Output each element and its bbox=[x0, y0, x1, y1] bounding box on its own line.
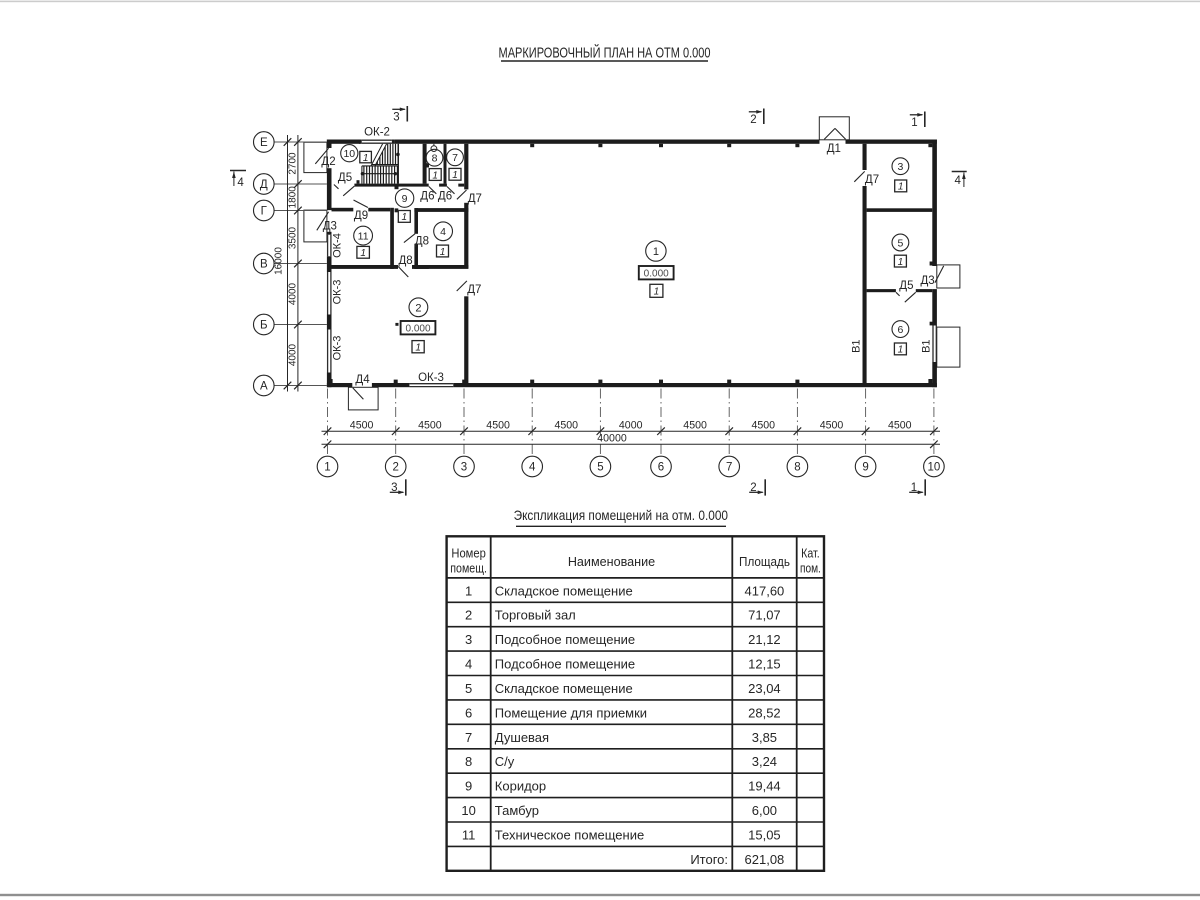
svg-text:7: 7 bbox=[452, 152, 458, 164]
svg-text:помещ.: помещ. bbox=[450, 560, 487, 575]
svg-text:4500: 4500 bbox=[683, 420, 707, 432]
svg-text:9: 9 bbox=[402, 193, 408, 205]
svg-text:1: 1 bbox=[324, 462, 330, 474]
svg-text:Д1: Д1 bbox=[827, 143, 841, 155]
svg-text:ОК-2: ОК-2 bbox=[364, 127, 390, 139]
svg-text:Подсобное помещение: Подсобное помещение bbox=[495, 657, 635, 672]
svg-text:1: 1 bbox=[363, 153, 369, 164]
svg-text:ОК-4: ОК-4 bbox=[332, 233, 344, 258]
svg-text:21,12: 21,12 bbox=[748, 632, 781, 647]
svg-text:1: 1 bbox=[898, 257, 904, 268]
svg-text:Д7: Д7 bbox=[865, 174, 879, 186]
svg-text:ОК-3: ОК-3 bbox=[332, 336, 344, 361]
svg-text:9: 9 bbox=[465, 779, 472, 794]
svg-text:0.000: 0.000 bbox=[644, 268, 669, 279]
svg-text:2: 2 bbox=[465, 608, 472, 623]
svg-text:1: 1 bbox=[654, 287, 660, 298]
svg-text:Номер: Номер bbox=[451, 546, 486, 561]
svg-text:Складское помещение: Складское помещение bbox=[495, 681, 633, 696]
svg-text:10: 10 bbox=[928, 462, 941, 474]
svg-text:5: 5 bbox=[897, 237, 903, 249]
svg-text:8: 8 bbox=[465, 754, 472, 769]
svg-text:6,00: 6,00 bbox=[752, 803, 777, 818]
svg-text:Итого:: Итого: bbox=[690, 852, 728, 867]
svg-text:Техническое помещение: Техническое помещение bbox=[495, 827, 644, 842]
svg-text:16000: 16000 bbox=[274, 247, 285, 275]
svg-text:7: 7 bbox=[726, 462, 732, 474]
svg-text:4: 4 bbox=[465, 657, 472, 672]
svg-text:Душевая: Душевая bbox=[495, 730, 549, 745]
svg-text:Д6: Д6 bbox=[420, 191, 434, 203]
svg-text:4500: 4500 bbox=[555, 420, 579, 432]
svg-text:В1: В1 bbox=[850, 339, 862, 352]
svg-text:ОК-3: ОК-3 bbox=[332, 280, 344, 305]
svg-text:1: 1 bbox=[440, 247, 446, 258]
svg-text:Д3: Д3 bbox=[323, 221, 337, 233]
svg-text:15,05: 15,05 bbox=[748, 827, 781, 842]
svg-text:Д2: Д2 bbox=[321, 156, 335, 168]
svg-text:Д5: Д5 bbox=[899, 280, 913, 292]
svg-text:621,08: 621,08 bbox=[745, 852, 785, 867]
svg-text:Д8: Д8 bbox=[415, 236, 429, 248]
svg-text:3,85: 3,85 bbox=[752, 730, 777, 745]
svg-text:0.000: 0.000 bbox=[405, 323, 430, 334]
svg-text:Д4: Д4 bbox=[355, 374, 370, 386]
svg-text:4500: 4500 bbox=[752, 420, 776, 432]
svg-text:1: 1 bbox=[452, 170, 458, 181]
svg-text:Кат.: Кат. bbox=[801, 545, 820, 560]
svg-text:2: 2 bbox=[392, 462, 398, 474]
svg-text:Б: Б bbox=[260, 320, 268, 332]
svg-text:3: 3 bbox=[897, 161, 903, 173]
svg-text:4500: 4500 bbox=[486, 420, 510, 432]
svg-text:7: 7 bbox=[465, 730, 472, 745]
svg-text:3,24: 3,24 bbox=[752, 754, 777, 769]
svg-text:4: 4 bbox=[440, 226, 446, 238]
svg-text:1: 1 bbox=[465, 583, 472, 598]
svg-text:1: 1 bbox=[911, 117, 917, 129]
svg-text:9: 9 bbox=[862, 462, 868, 474]
svg-text:10: 10 bbox=[461, 803, 475, 818]
svg-text:4000: 4000 bbox=[619, 420, 643, 432]
svg-text:Д7: Д7 bbox=[468, 193, 482, 205]
svg-text:11: 11 bbox=[358, 230, 369, 242]
svg-text:4: 4 bbox=[954, 175, 961, 187]
svg-text:4000: 4000 bbox=[287, 343, 298, 366]
svg-text:МАРКИРОВОЧНЫЙ ПЛАН НА ОТМ 0.00: МАРКИРОВОЧНЫЙ ПЛАН НА ОТМ 0.000 bbox=[499, 44, 711, 61]
svg-text:8: 8 bbox=[794, 462, 800, 474]
svg-text:71,07: 71,07 bbox=[748, 608, 781, 623]
svg-text:1: 1 bbox=[402, 212, 408, 223]
svg-text:4: 4 bbox=[237, 177, 244, 189]
svg-text:3: 3 bbox=[465, 632, 472, 647]
svg-text:Наименование: Наименование bbox=[568, 554, 655, 569]
svg-text:6: 6 bbox=[465, 705, 472, 720]
svg-text:Помещение для приемки: Помещение для приемки bbox=[495, 705, 647, 720]
svg-text:В: В bbox=[260, 259, 268, 271]
svg-text:Д: Д bbox=[260, 179, 268, 191]
svg-text:12,15: 12,15 bbox=[748, 657, 781, 672]
svg-text:4500: 4500 bbox=[350, 420, 374, 432]
svg-text:Торговый зал: Торговый зал bbox=[495, 608, 576, 623]
svg-text:40000: 40000 bbox=[597, 433, 627, 445]
svg-text:417,60: 417,60 bbox=[745, 583, 785, 598]
svg-text:2: 2 bbox=[750, 114, 756, 126]
svg-text:11: 11 bbox=[462, 827, 476, 842]
svg-text:2: 2 bbox=[415, 302, 421, 314]
svg-text:1: 1 bbox=[653, 246, 659, 258]
svg-text:6: 6 bbox=[658, 462, 664, 474]
svg-text:19,44: 19,44 bbox=[748, 779, 781, 794]
svg-text:4500: 4500 bbox=[418, 420, 442, 432]
svg-text:4000: 4000 bbox=[287, 282, 298, 305]
svg-text:Д8: Д8 bbox=[399, 255, 413, 267]
svg-text:Д6: Д6 bbox=[438, 190, 452, 202]
svg-text:Д7: Д7 bbox=[467, 284, 481, 296]
svg-text:Экспликация помещений на отм.: Экспликация помещений на отм. 0.000 bbox=[514, 508, 728, 523]
svg-text:1: 1 bbox=[415, 343, 421, 354]
svg-text:3500: 3500 bbox=[287, 226, 298, 249]
svg-text:Д9: Д9 bbox=[354, 210, 368, 222]
svg-text:1800: 1800 bbox=[287, 186, 298, 209]
svg-text:Д3: Д3 bbox=[921, 275, 935, 287]
svg-text:пом.: пом. bbox=[800, 561, 821, 575]
svg-text:4: 4 bbox=[529, 462, 536, 474]
svg-text:4500: 4500 bbox=[820, 420, 844, 432]
svg-text:8: 8 bbox=[432, 153, 438, 165]
svg-text:ОК-3: ОК-3 bbox=[418, 372, 444, 384]
svg-text:1: 1 bbox=[898, 345, 904, 356]
svg-text:4500: 4500 bbox=[888, 420, 912, 432]
svg-text:28,52: 28,52 bbox=[748, 705, 781, 720]
svg-text:Складское помещение: Складское помещение bbox=[495, 583, 633, 598]
svg-text:Площадь: Площадь bbox=[739, 554, 790, 569]
svg-text:Тамбур: Тамбур bbox=[495, 803, 539, 818]
svg-text:Е: Е bbox=[260, 137, 268, 149]
svg-text:3: 3 bbox=[461, 462, 467, 474]
svg-text:Коридор: Коридор bbox=[495, 779, 546, 794]
svg-text:3: 3 bbox=[393, 112, 399, 124]
svg-text:1: 1 bbox=[360, 248, 366, 259]
svg-text:23,04: 23,04 bbox=[748, 681, 781, 696]
svg-text:2700: 2700 bbox=[287, 152, 298, 175]
svg-text:В1: В1 bbox=[920, 339, 932, 352]
svg-text:5: 5 bbox=[597, 462, 603, 474]
svg-text:1: 1 bbox=[432, 170, 438, 181]
svg-text:1: 1 bbox=[898, 182, 904, 193]
svg-text:Д5: Д5 bbox=[338, 172, 352, 184]
svg-text:Подсобное помещение: Подсобное помещение bbox=[495, 632, 635, 647]
svg-text:А: А bbox=[260, 381, 268, 393]
svg-text:Г: Г bbox=[261, 206, 268, 218]
svg-text:6: 6 bbox=[897, 324, 903, 336]
svg-text:10: 10 bbox=[343, 148, 355, 160]
svg-text:5: 5 bbox=[465, 681, 472, 696]
svg-text:С/у: С/у bbox=[495, 754, 515, 769]
